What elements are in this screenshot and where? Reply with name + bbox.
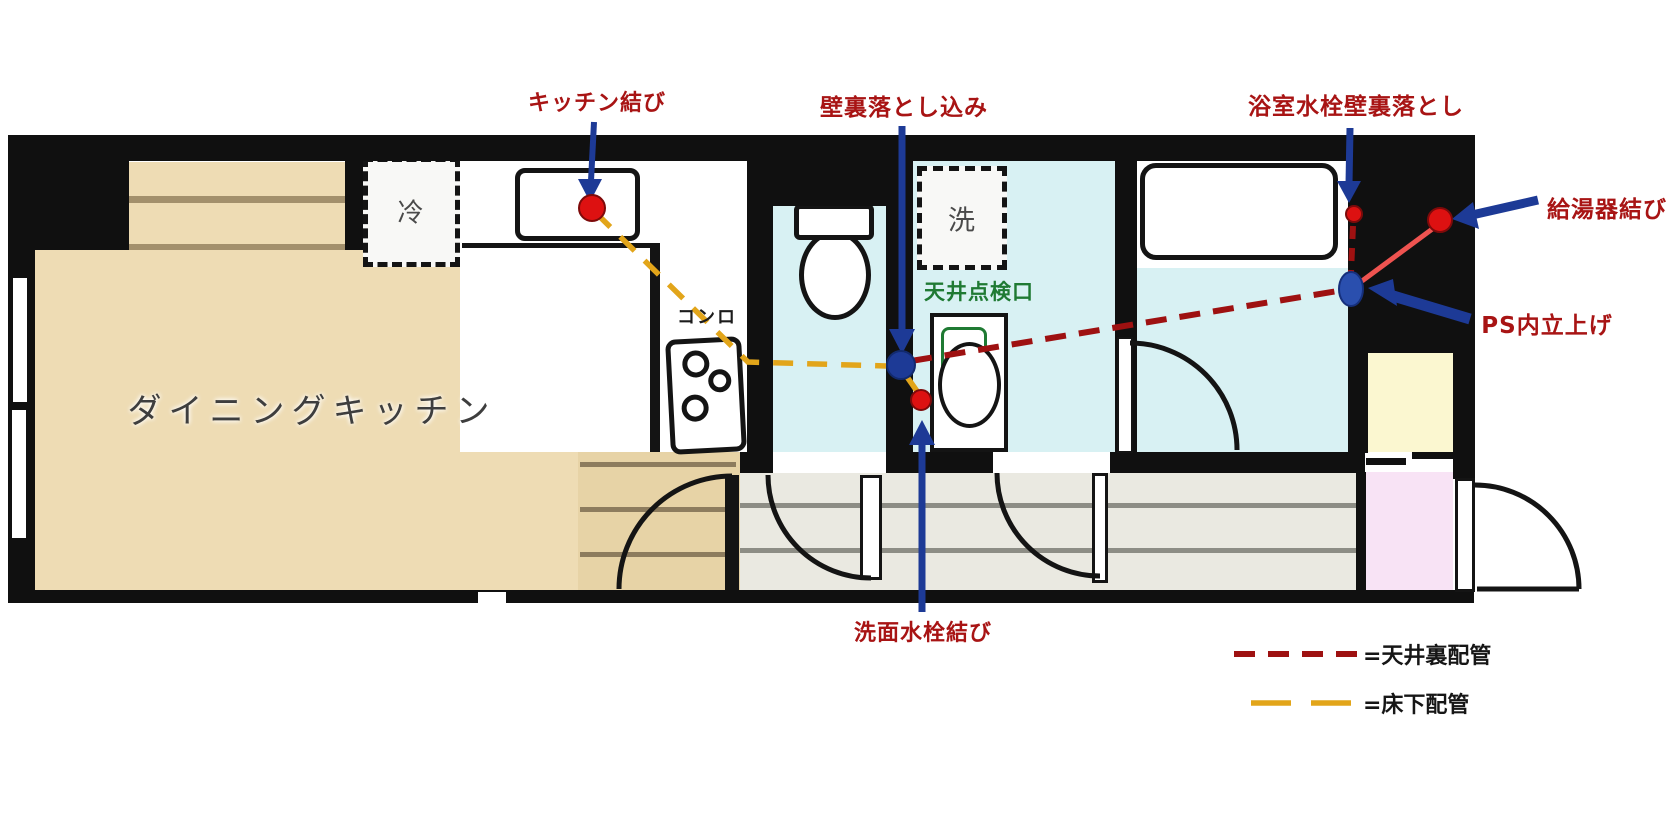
label-ceiling-inspection-port: 天井点検口 (924, 276, 1034, 306)
underfloor-pipe (596, 213, 886, 366)
label-dining-kitchen: ダイニングキッチン (128, 384, 497, 433)
label-washing-machine: 洗 (948, 199, 976, 238)
dining-door-arc (619, 476, 732, 589)
bath-drop-arrow (1349, 128, 1350, 184)
washroom-door-arc (997, 473, 1100, 576)
kitchen-tie-arrow (591, 122, 594, 181)
bath-door-arc (1130, 343, 1237, 450)
legend-ceiling-pipe-label: =天井裏配管 (1363, 638, 1491, 670)
label-ps-riser: PS内立上げ (1481, 306, 1612, 340)
bath-drop-arrowhead (1337, 181, 1361, 203)
basin-tie-arrowhead (909, 420, 935, 445)
ceiling-pipe-riser (1351, 226, 1353, 272)
heater-tie-arrowhead (1452, 202, 1479, 229)
ps-riser-arrowhead (1368, 279, 1397, 306)
wall-drop-node (887, 351, 915, 379)
label-kitchen-tie: キッチン結び (528, 85, 666, 117)
label-wall-drop: 壁裏落とし込み (820, 88, 988, 122)
bath-faucet-dot (1346, 206, 1362, 222)
label-heater-tie: 給湯器結び (1547, 190, 1667, 224)
label-bath-wall-drop: 浴室水栓壁裏落とし (1248, 87, 1464, 121)
ps-riser-arrow (1390, 295, 1470, 319)
toilet-door-arc (768, 475, 871, 578)
legend-underfloor-pipe-label: =床下配管 (1363, 687, 1469, 719)
label-basin-tie: 洗面水栓結び (854, 615, 992, 647)
entrance-door-arc (1475, 485, 1579, 589)
basin-connection-dot (911, 390, 931, 410)
label-stove: コンロ (677, 303, 737, 329)
kitchen-connection-dot (579, 195, 605, 221)
floor-plan-diagram: キッチン結び 壁裏落とし込み 浴室水栓壁裏落とし 給湯器結び PS内立上げ 洗面… (0, 0, 1680, 813)
heater-pipe-link (1362, 227, 1435, 281)
heater-tie-arrow (1472, 200, 1538, 215)
ps-riser-node (1339, 272, 1363, 306)
label-refrigerator: 冷 (397, 193, 424, 230)
heater-connection-dot (1428, 208, 1452, 232)
